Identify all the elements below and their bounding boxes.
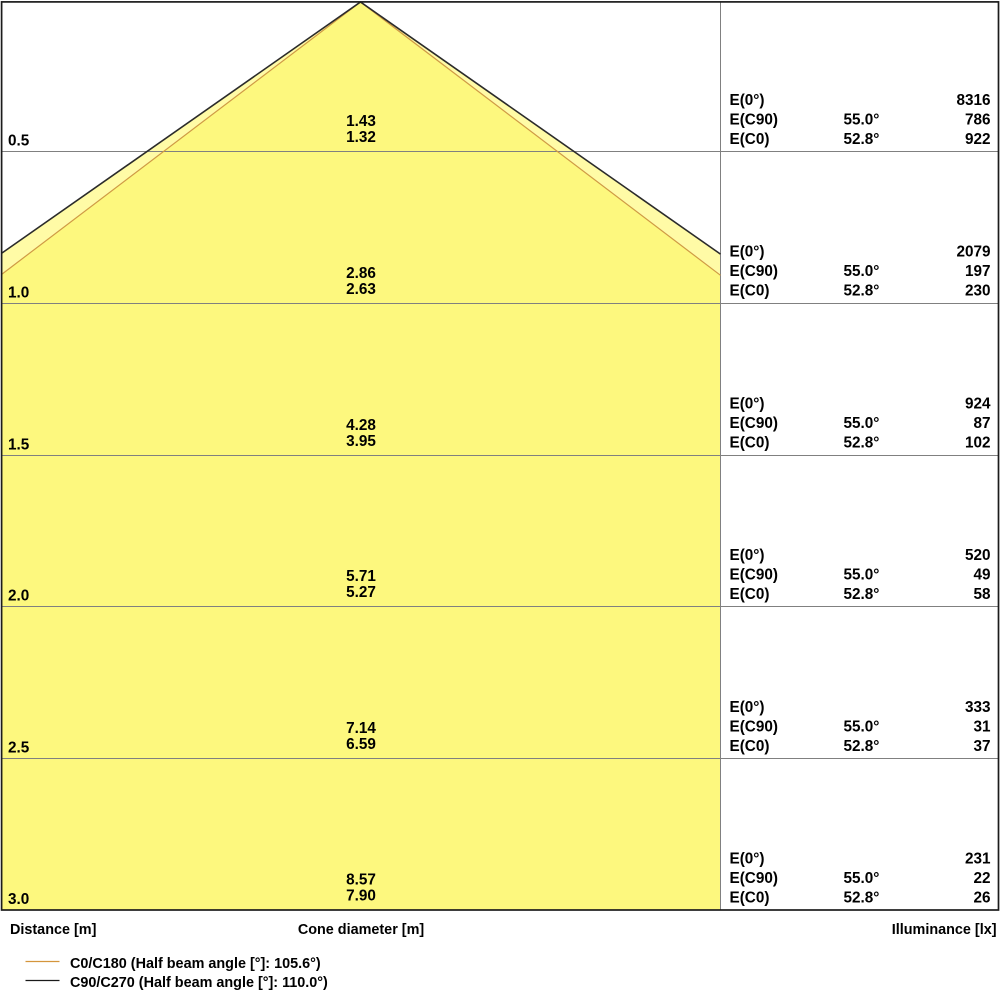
svg-text:922: 922 [965,131,991,148]
svg-text:C90/C270 (Half beam angle [°]:: C90/C270 (Half beam angle [°]: 110.0°) [70,975,328,991]
svg-text:0.5: 0.5 [8,133,30,150]
svg-text:E(C0): E(C0) [730,586,770,603]
svg-text:52.8°: 52.8° [844,283,880,300]
svg-text:55.0°: 55.0° [844,870,880,887]
svg-text:E(C0): E(C0) [730,890,770,907]
svg-text:22: 22 [973,870,990,887]
svg-text:520: 520 [965,547,991,564]
svg-text:2.86: 2.86 [346,265,376,282]
svg-text:1.0: 1.0 [8,285,29,302]
svg-text:55.0°: 55.0° [844,567,880,584]
svg-text:2.63: 2.63 [346,281,376,298]
svg-text:786: 786 [965,112,991,129]
svg-text:E(0°): E(0°) [730,92,765,109]
svg-text:Illuminance [lx]: Illuminance [lx] [892,922,997,938]
svg-text:231: 231 [965,851,991,868]
svg-text:5.71: 5.71 [346,568,376,585]
svg-text:E(0°): E(0°) [730,547,765,564]
svg-text:37: 37 [973,738,990,755]
svg-text:E(0°): E(0°) [730,851,765,868]
svg-text:102: 102 [965,434,991,451]
svg-text:924: 924 [965,396,991,413]
svg-text:1.5: 1.5 [8,437,30,454]
svg-text:E(C90): E(C90) [730,567,778,584]
svg-text:55.0°: 55.0° [844,263,880,280]
svg-text:5.27: 5.27 [346,584,376,601]
svg-text:E(C90): E(C90) [730,415,778,432]
svg-text:2079: 2079 [956,244,990,261]
svg-text:7.14: 7.14 [346,720,376,737]
svg-text:E(C90): E(C90) [730,112,778,129]
svg-text:52.8°: 52.8° [844,131,880,148]
svg-text:E(C0): E(C0) [730,131,770,148]
svg-text:7.90: 7.90 [346,888,376,905]
svg-text:Distance [m]: Distance [m] [10,922,96,938]
svg-text:333: 333 [965,699,991,716]
svg-text:C0/C180 (Half beam angle [°]:: C0/C180 (Half beam angle [°]: 105.6°) [70,956,321,972]
svg-text:E(C90): E(C90) [730,870,778,887]
svg-text:26: 26 [973,890,990,907]
svg-text:197: 197 [965,263,991,280]
svg-text:4.28: 4.28 [346,417,376,434]
svg-text:E(C0): E(C0) [730,434,770,451]
svg-text:E(0°): E(0°) [730,244,765,261]
svg-text:52.8°: 52.8° [844,434,880,451]
svg-text:E(0°): E(0°) [730,699,765,716]
svg-text:58: 58 [973,586,991,603]
svg-text:52.8°: 52.8° [844,738,880,755]
svg-text:1.32: 1.32 [346,129,376,146]
svg-text:55.0°: 55.0° [844,112,880,129]
svg-text:E(C90): E(C90) [730,263,778,280]
svg-text:E(0°): E(0°) [730,396,765,413]
svg-text:87: 87 [973,415,990,432]
svg-text:6.59: 6.59 [346,736,376,753]
svg-text:3.95: 3.95 [346,433,376,450]
svg-text:2.5: 2.5 [8,740,30,757]
svg-text:52.8°: 52.8° [844,586,880,603]
svg-text:230: 230 [965,283,991,300]
svg-text:3.0: 3.0 [8,891,29,908]
svg-text:E(C0): E(C0) [730,283,770,300]
svg-text:31: 31 [973,718,991,735]
svg-text:8316: 8316 [956,92,990,109]
svg-text:55.0°: 55.0° [844,718,880,735]
svg-text:E(C0): E(C0) [730,738,770,755]
svg-text:E(C90): E(C90) [730,718,778,735]
svg-text:1.43: 1.43 [346,113,376,130]
svg-text:52.8°: 52.8° [844,890,880,907]
svg-text:Cone diameter [m]: Cone diameter [m] [298,922,424,938]
svg-text:55.0°: 55.0° [844,415,880,432]
svg-text:49: 49 [973,567,990,584]
svg-text:8.57: 8.57 [346,871,376,888]
svg-text:2.0: 2.0 [8,588,29,605]
